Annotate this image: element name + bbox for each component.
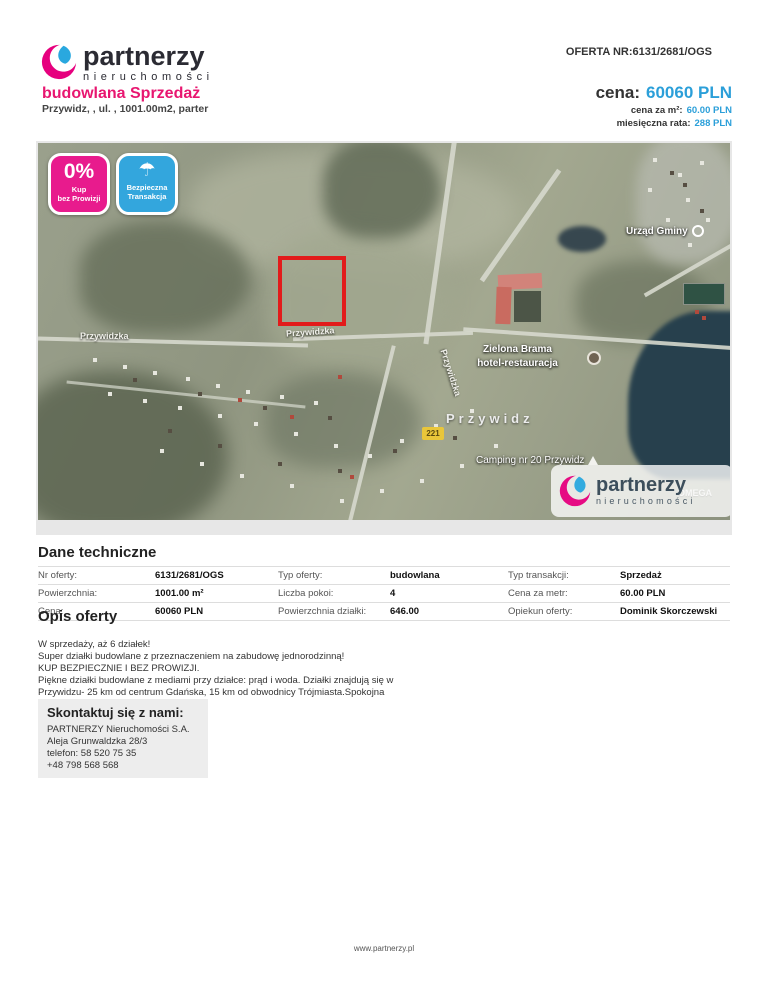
contact-heading: Skontaktuj się z nami:	[47, 705, 199, 720]
price-per-m2: cena za m²:60.00 PLN	[596, 105, 732, 116]
offer-description-section: Opis oferty W sprzedaży, aż 6 działek! S…	[38, 608, 730, 711]
technical-data-heading: Dane techniczne	[38, 544, 730, 561]
price-per-m2-label: cena za m²:	[631, 105, 683, 116]
brand-subname: nieruchomości	[83, 71, 214, 83]
camping-triangle-icon	[588, 456, 598, 465]
contact-mobile: +48 798 568 568	[47, 760, 199, 772]
no-commission-badge: 0% Kup bez Prowizji	[48, 153, 110, 215]
map-watermark: partnerzy nieruchomości	[551, 465, 730, 517]
offer-document-page: partnerzy nieruchomości OFERTA NR:6131/2…	[0, 0, 768, 994]
monthly-rate-value: 288 PLN	[695, 118, 733, 129]
contact-address: Aleja Grunwaldzka 28/3	[47, 736, 199, 748]
road-number-shield: 221	[422, 427, 444, 440]
offer-number: OFERTA NR:6131/2681/OGS	[566, 46, 712, 58]
map-red-roofs	[38, 143, 42, 147]
tech-table-row: Powierzchnia: 1001.00 m² Liczba pokoi: 4…	[38, 584, 730, 602]
map-forest-patch	[38, 371, 228, 520]
map-village-patch	[636, 143, 730, 263]
offer-description-heading: Opis oferty	[38, 608, 730, 625]
safe-transaction-badge: ☂ Bezpieczna Transakcja	[116, 153, 178, 215]
brand-logo-swirl-icon	[41, 44, 77, 80]
price-per-m2-value: 60.00 PLN	[687, 105, 732, 116]
tech-table-row: Nr oferty: 6131/2681/OGS Typ oferty: bud…	[38, 566, 730, 584]
price-value: 60060 PLN	[646, 83, 732, 102]
map-sports-court	[683, 283, 725, 305]
brand-logo: partnerzy nieruchomości	[41, 44, 214, 83]
map-label-hotel: Zielona Brama hotel-restauracja	[450, 343, 585, 371]
contact-box: Skontaktuj się z nami: PARTNERZY Nieruch…	[38, 699, 208, 778]
offer-subtitle: Przywidz, , ul. , 1001.00m2, parter	[42, 103, 208, 115]
map-forest-patch	[80, 221, 250, 333]
watermark-logo-swirl-icon	[559, 475, 591, 507]
price-label: cena:	[596, 83, 640, 102]
map-label-town-office: Urząd Gminy	[626, 225, 704, 237]
footer-url[interactable]: www.partnerzy.pl	[0, 944, 768, 953]
map-street-label: Przywidzka	[80, 331, 129, 341]
map-school-building	[496, 274, 544, 326]
plot-outline-rectangle	[278, 256, 346, 326]
poi-dot-icon	[587, 351, 601, 365]
map-road	[38, 336, 308, 347]
map-forest-patch	[266, 373, 421, 468]
place-ring-icon	[692, 225, 704, 237]
brand-name: partnerzy	[83, 44, 214, 68]
watermark-brand-subname: nieruchomości	[596, 496, 696, 506]
no-commission-percent: 0%	[51, 159, 107, 185]
map-label-town: Przywidz	[446, 411, 534, 426]
monthly-rate-label: miesięczna rata:	[617, 118, 691, 129]
contact-phone: telefon: 58 520 75 35	[47, 748, 199, 760]
umbrella-icon: ☂	[119, 159, 175, 183]
map-frame: 0% Kup bez Prowizji ☂ Bezpieczna Transak…	[36, 141, 732, 535]
monthly-rate: miesięczna rata:288 PLN	[596, 118, 732, 129]
offer-title: budowlana Sprzedaż	[42, 85, 200, 103]
satellite-map: 0% Kup bez Prowizji ☂ Bezpieczna Transak…	[38, 143, 730, 520]
map-pond	[558, 226, 606, 252]
watermark-brand-name: partnerzy	[596, 476, 696, 494]
price-main: cena:60060 PLN	[596, 83, 732, 103]
contact-company: PARTNERZY Nieruchomości S.A.	[47, 724, 199, 736]
price-block: cena:60060 PLN cena za m²:60.00 PLN mies…	[596, 83, 732, 129]
map-forest-patch	[323, 143, 441, 238]
